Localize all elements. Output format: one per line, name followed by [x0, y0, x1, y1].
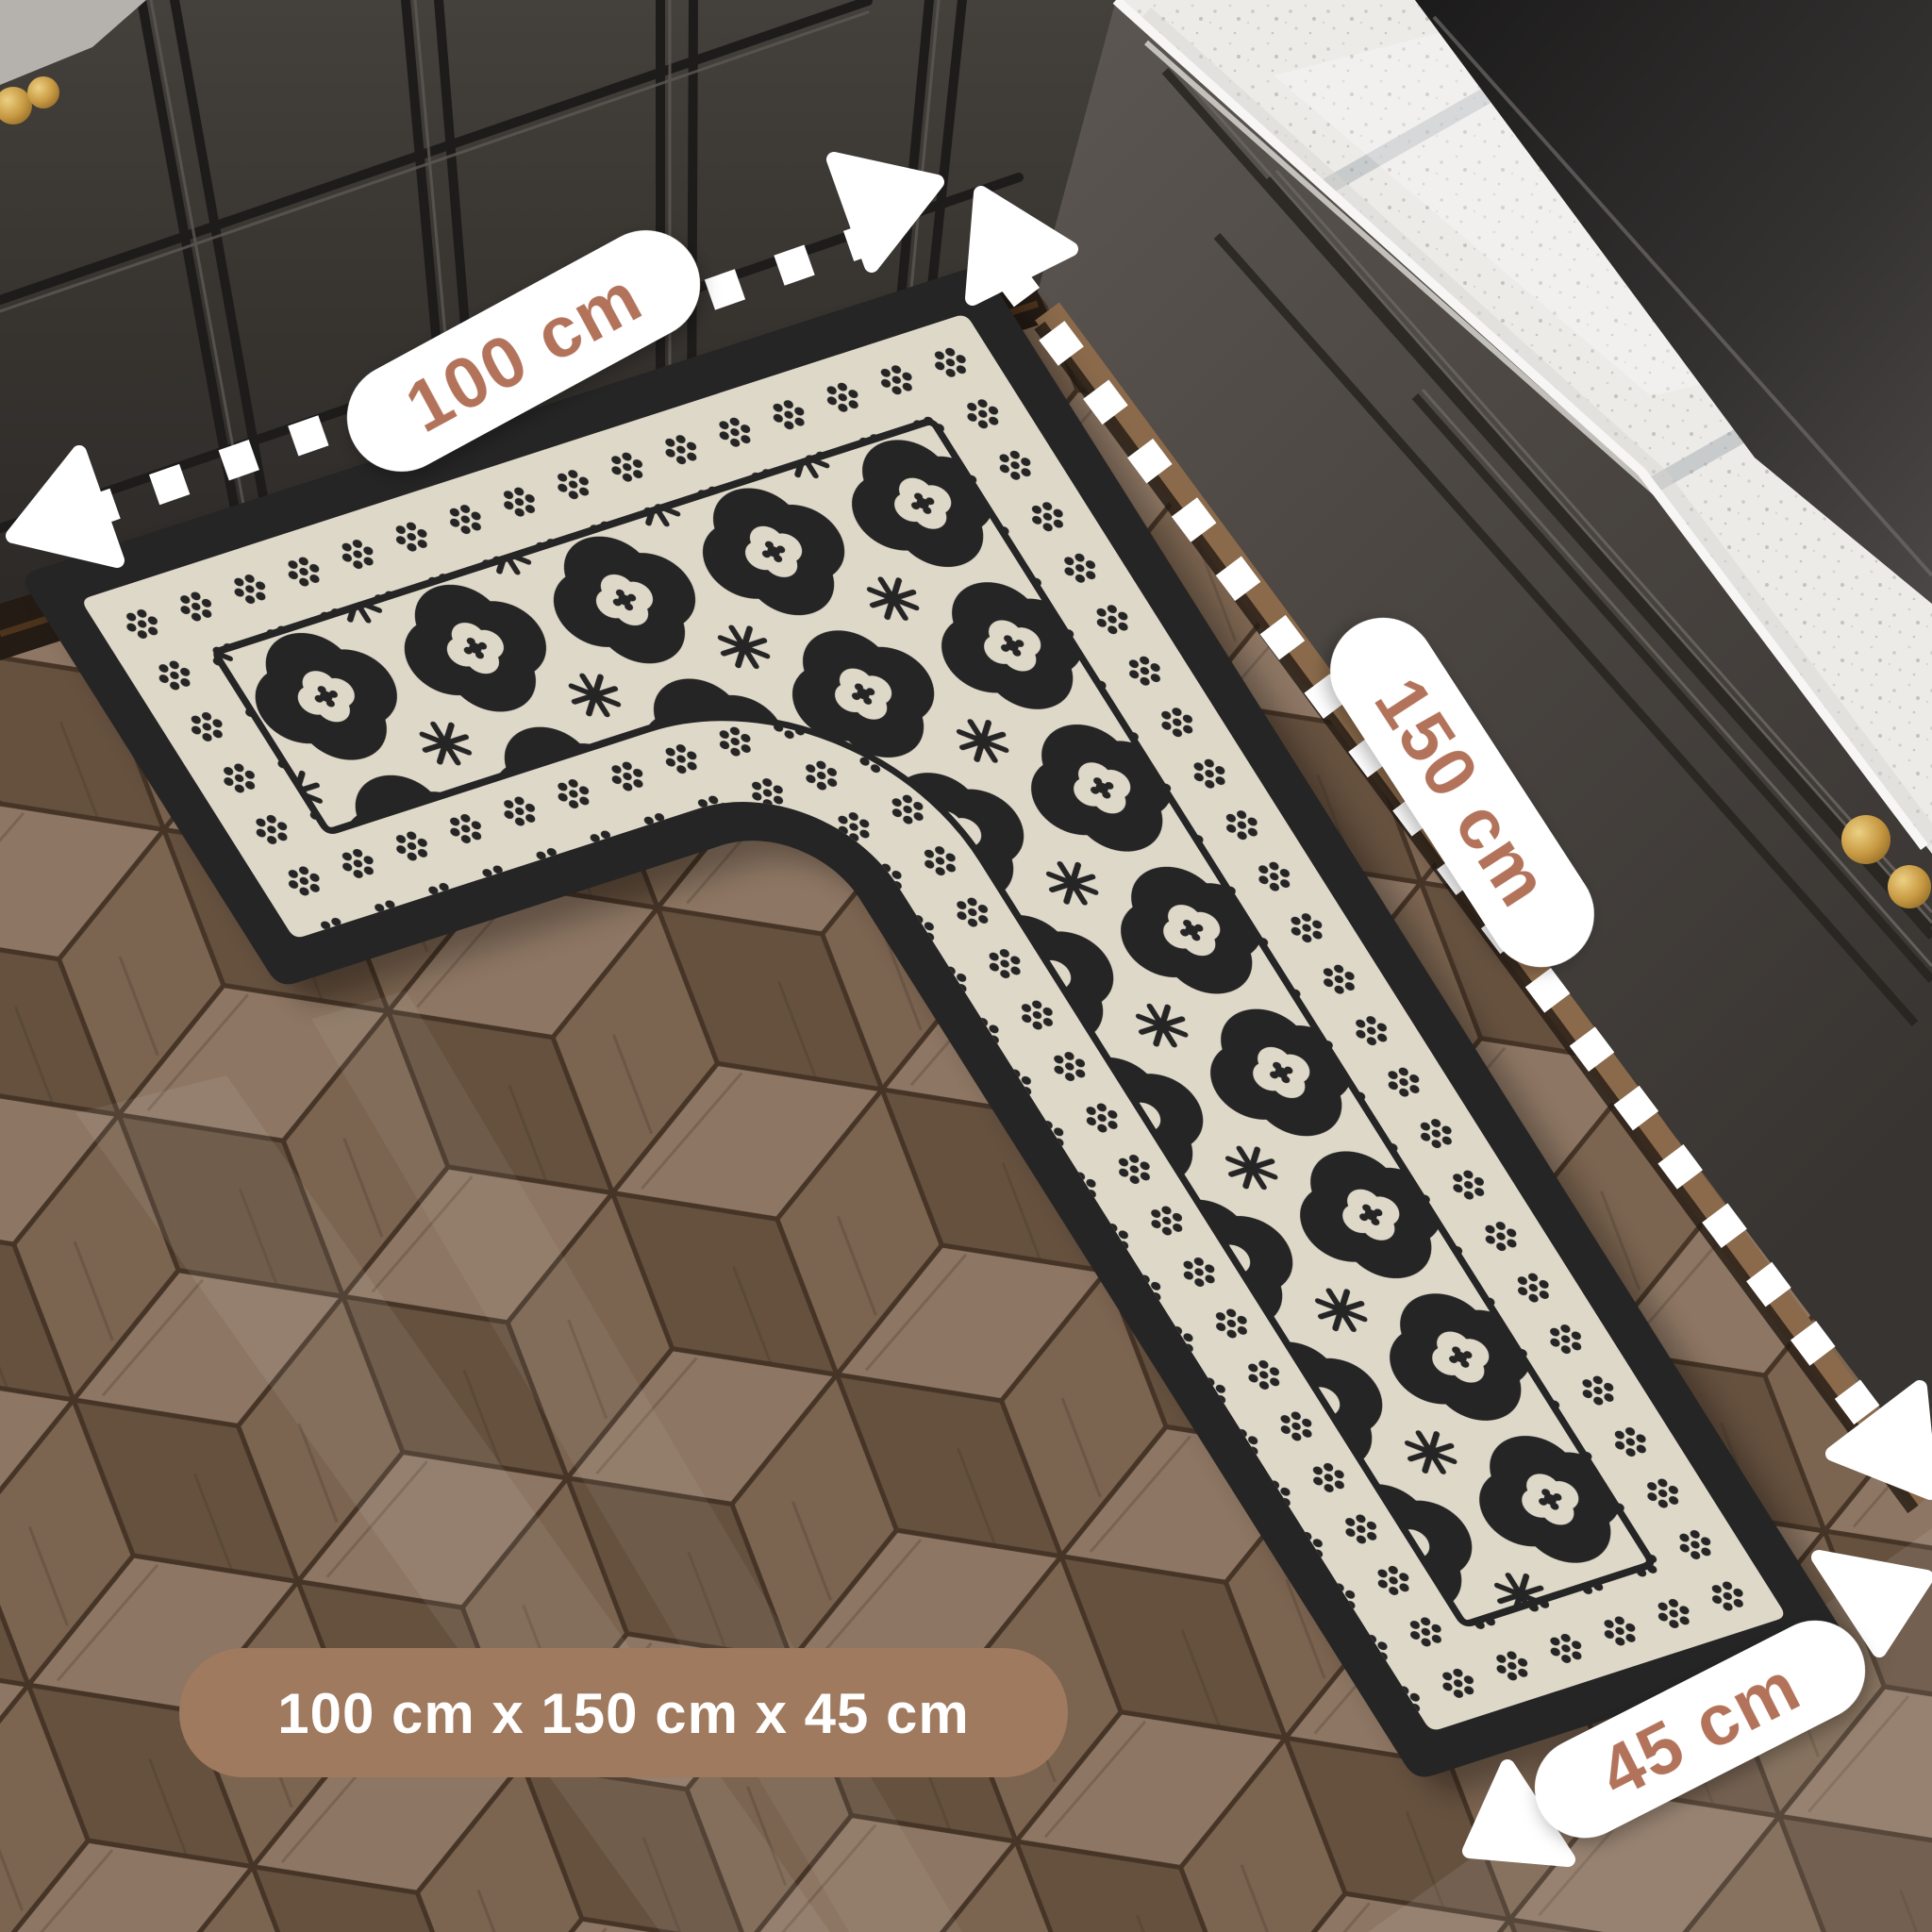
kitchen-corner-mat-scene: 100 cm 150 cm 45 cm 100 cm x 150 cm x 45…: [0, 0, 1932, 1932]
cabinet-knob: [27, 76, 59, 108]
product-dimension-photo: 100 cm 150 cm 45 cm 100 cm x 150 cm x 45…: [0, 0, 1932, 1932]
cabinet-knob: [1888, 865, 1931, 908]
size-summary-label: 100 cm x 150 cm x 45 cm: [277, 1682, 970, 1745]
cabinet-knob: [1841, 815, 1890, 864]
size-summary-badge: 100 cm x 150 cm x 45 cm: [179, 1648, 1068, 1777]
